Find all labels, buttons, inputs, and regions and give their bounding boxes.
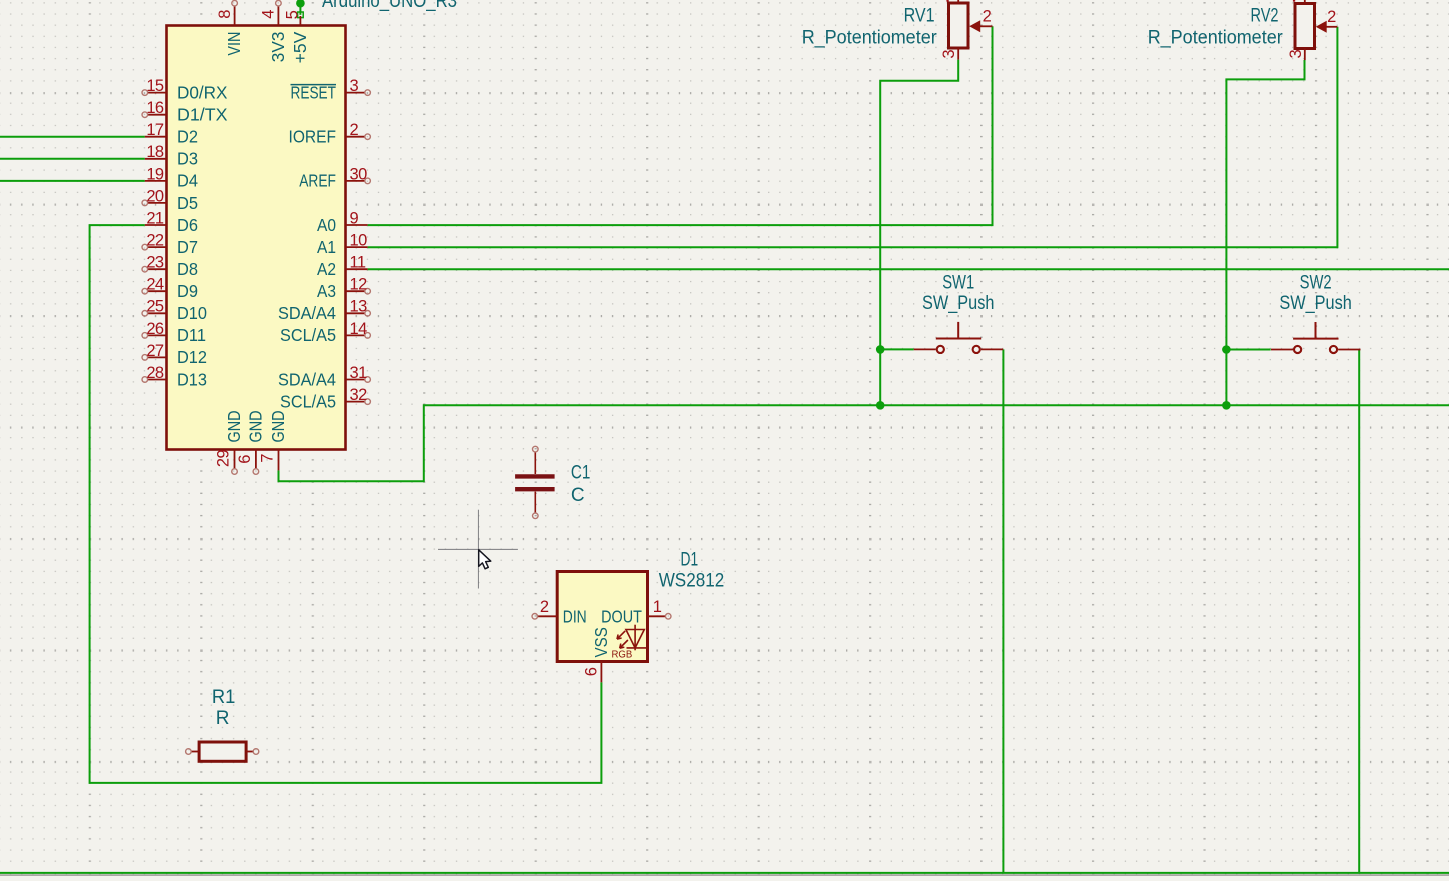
svg-text:RV1: RV1 — [904, 6, 935, 27]
svg-text:SW1: SW1 — [942, 273, 974, 294]
svg-text:13: 13 — [350, 298, 368, 316]
svg-text:10: 10 — [350, 232, 368, 250]
svg-text:R1: R1 — [212, 687, 236, 708]
svg-text:9: 9 — [350, 209, 359, 227]
svg-text:22: 22 — [146, 232, 164, 250]
svg-text:7: 7 — [259, 454, 277, 463]
svg-text:25: 25 — [146, 298, 164, 316]
svg-text:24: 24 — [146, 276, 164, 294]
svg-text:27: 27 — [146, 342, 164, 360]
svg-text:12: 12 — [350, 276, 368, 294]
svg-text:28: 28 — [146, 364, 164, 382]
svg-text:GND: GND — [246, 411, 266, 443]
svg-text:3: 3 — [350, 77, 359, 95]
svg-text:SDA/A4: SDA/A4 — [278, 369, 336, 389]
svg-text:C: C — [571, 485, 585, 506]
svg-text:D0/RX: D0/RX — [177, 82, 228, 102]
svg-text:D4: D4 — [177, 171, 198, 191]
svg-text:30: 30 — [350, 165, 368, 183]
svg-text:31: 31 — [350, 364, 368, 382]
svg-text:D1: D1 — [681, 549, 699, 570]
svg-text:19: 19 — [146, 165, 164, 183]
svg-text:3: 3 — [1287, 49, 1305, 58]
svg-text:WS2812: WS2812 — [659, 571, 725, 592]
svg-text:A3: A3 — [317, 281, 336, 301]
svg-text:RGB: RGB — [612, 650, 633, 661]
svg-text:Arduino_UNO_R3: Arduino_UNO_R3 — [322, 0, 457, 12]
svg-text:6: 6 — [582, 667, 600, 676]
svg-text:AREF: AREF — [299, 171, 336, 191]
svg-text:21: 21 — [146, 209, 164, 227]
svg-text:16: 16 — [146, 99, 164, 117]
svg-text:DOUT: DOUT — [601, 606, 642, 626]
svg-text:3: 3 — [940, 50, 958, 59]
svg-text:SW2: SW2 — [1300, 273, 1332, 294]
svg-text:18: 18 — [146, 143, 164, 161]
svg-text:11: 11 — [350, 254, 366, 272]
svg-text:VIN: VIN — [224, 32, 244, 56]
svg-text:3V3: 3V3 — [268, 32, 288, 63]
svg-text:2: 2 — [1327, 8, 1336, 26]
svg-text:DIN: DIN — [563, 606, 587, 626]
svg-text:A1: A1 — [317, 237, 336, 257]
svg-text:D5: D5 — [177, 193, 198, 213]
svg-text:17: 17 — [146, 121, 164, 139]
svg-text:D13: D13 — [177, 369, 207, 389]
svg-text:R: R — [216, 708, 230, 729]
svg-text:GND: GND — [268, 411, 288, 443]
svg-text:SW_Push: SW_Push — [1279, 293, 1351, 314]
svg-text:4: 4 — [260, 10, 278, 19]
svg-text:2: 2 — [540, 598, 549, 616]
svg-text:GND: GND — [224, 411, 244, 443]
svg-text:20: 20 — [146, 187, 164, 205]
svg-text:15: 15 — [146, 77, 164, 95]
svg-text:D2: D2 — [177, 127, 198, 147]
svg-text:5: 5 — [283, 10, 301, 19]
svg-text:SCL/A5: SCL/A5 — [280, 391, 336, 411]
svg-text:RV2: RV2 — [1251, 6, 1279, 27]
svg-text:D3: D3 — [177, 149, 198, 169]
svg-text:C1: C1 — [571, 462, 591, 483]
svg-text:A2: A2 — [317, 259, 336, 279]
svg-text:D6: D6 — [177, 215, 198, 235]
svg-text:2: 2 — [983, 8, 992, 26]
svg-text:IOREF: IOREF — [289, 127, 337, 147]
svg-text:D12: D12 — [177, 347, 207, 367]
svg-text:29: 29 — [215, 450, 233, 468]
svg-text:23: 23 — [146, 254, 164, 272]
svg-text:R_Potentiometer: R_Potentiometer — [802, 28, 938, 49]
svg-text:1: 1 — [653, 598, 662, 616]
svg-text:A0: A0 — [317, 215, 336, 235]
svg-text:R_Potentiometer: R_Potentiometer — [1148, 28, 1284, 49]
svg-text:SCL/A5: SCL/A5 — [280, 325, 336, 345]
svg-text:SW_Push: SW_Push — [922, 293, 994, 314]
svg-text:D9: D9 — [177, 281, 198, 301]
svg-text:D7: D7 — [177, 237, 198, 257]
svg-text:VSS: VSS — [591, 627, 611, 657]
svg-text:D8: D8 — [177, 259, 198, 279]
svg-text:32: 32 — [350, 386, 368, 404]
svg-text:14: 14 — [350, 320, 368, 338]
svg-text:+5V: +5V — [290, 31, 310, 63]
svg-text:D10: D10 — [177, 303, 207, 323]
svg-text:SDA/A4: SDA/A4 — [278, 303, 336, 323]
svg-text:6: 6 — [236, 455, 254, 464]
svg-text:D1/TX: D1/TX — [177, 105, 228, 125]
svg-text:8: 8 — [216, 10, 234, 19]
svg-text:26: 26 — [146, 320, 164, 338]
svg-text:RESET: RESET — [291, 82, 337, 102]
svg-text:D11: D11 — [177, 325, 206, 345]
svg-text:2: 2 — [350, 121, 359, 139]
